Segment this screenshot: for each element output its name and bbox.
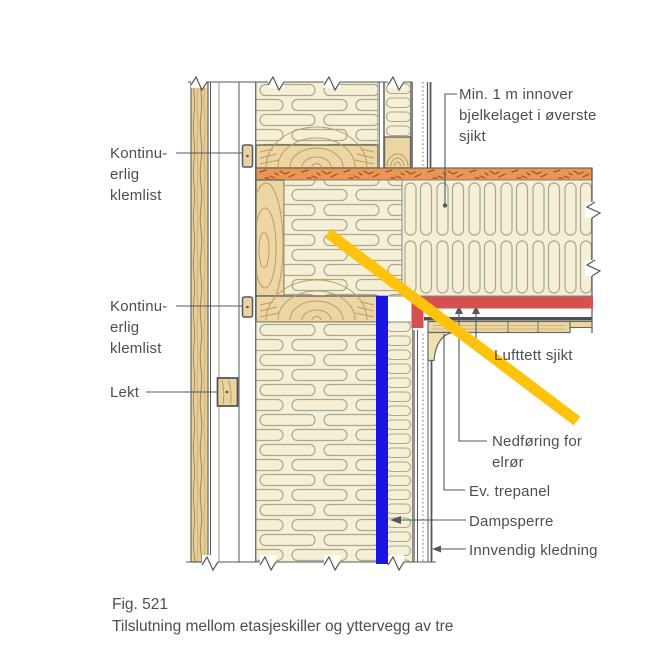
leader-dot bbox=[443, 203, 447, 207]
leader-ev-trepanel bbox=[444, 334, 465, 490]
klemlist-block-top bbox=[243, 145, 253, 167]
label-klemlist-top: Kontinu- erlig klemlist bbox=[110, 143, 167, 206]
label-ev-trepanel: Ev. trepanel bbox=[469, 481, 550, 502]
cove-molding bbox=[428, 333, 452, 361]
figure-container: Kontinu- erlig klemlist Kontinu- erlig k… bbox=[0, 0, 669, 671]
left-arrow-icon bbox=[432, 546, 441, 553]
label-innvendig-kledning: Innvendig kledning bbox=[469, 540, 598, 561]
label-nedforing: Nedføring for elrør bbox=[492, 431, 582, 473]
label-min-innover: Min. 1 m innover bjelkelaget i øverste s… bbox=[459, 84, 597, 147]
label-dampsperre: Dampsperre bbox=[469, 511, 554, 532]
figure-number: Fig. 521 bbox=[112, 594, 168, 616]
exterior-cladding-board bbox=[191, 82, 208, 562]
floor-insulation-right bbox=[402, 180, 592, 296]
interior-lining-lower bbox=[414, 330, 432, 562]
lekt-block bbox=[218, 378, 238, 406]
wall-insulation-upper bbox=[256, 82, 378, 145]
wall-insulation-lower bbox=[256, 322, 378, 562]
subfloor-layer bbox=[256, 168, 592, 180]
klemlist-block-bottom bbox=[243, 297, 253, 317]
label-klemlist-bottom: Kontinu- erlig klemlist bbox=[110, 296, 167, 359]
inner-insulation-lower bbox=[385, 322, 413, 562]
inner-blocking-upper bbox=[385, 137, 411, 168]
label-lekt: Lekt bbox=[110, 382, 139, 403]
interior-lining-upper bbox=[412, 82, 431, 180]
inner-insulation-upper bbox=[385, 82, 411, 137]
label-lufttett-sjikt: Lufttett sjikt bbox=[494, 345, 573, 366]
figure-caption: Tilslutning mellom etasjeskiller og ytte… bbox=[112, 616, 453, 638]
